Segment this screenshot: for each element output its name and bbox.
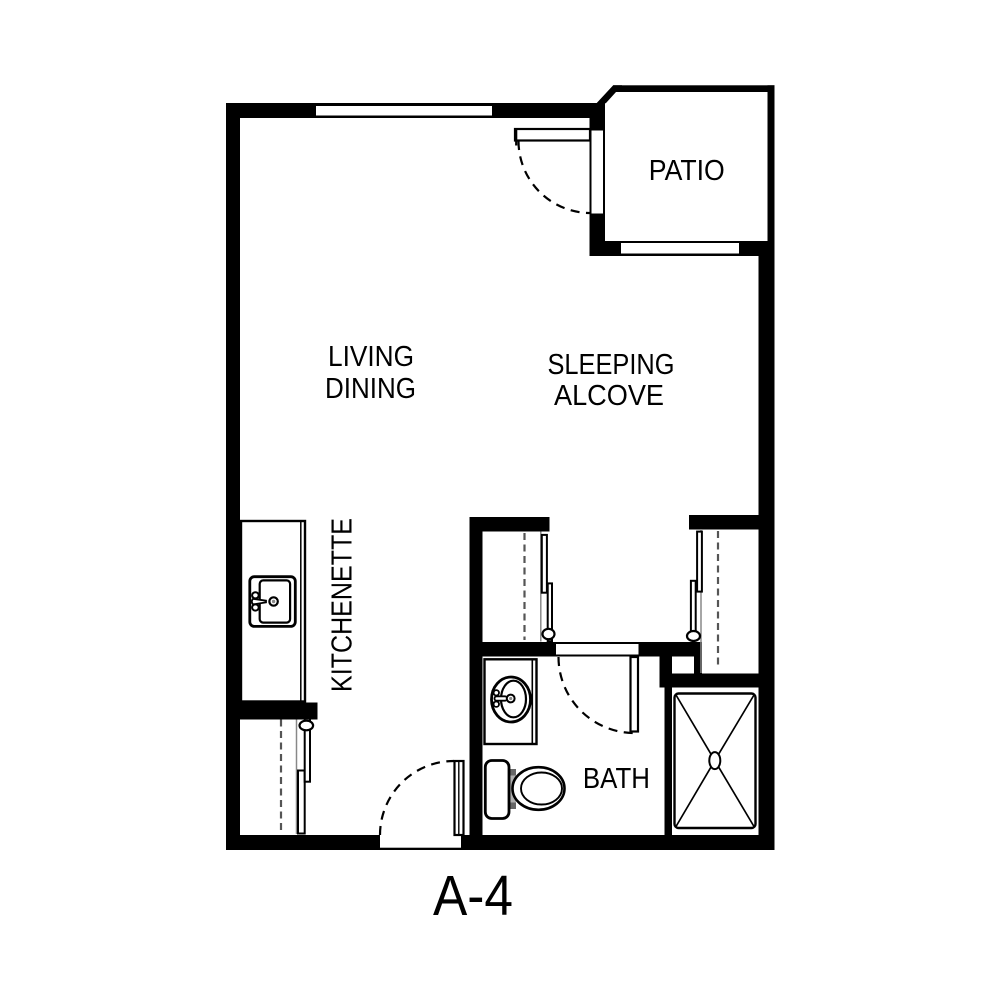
svg-text:KITCHENETTE: KITCHENETTE [327,518,359,692]
svg-text:BATH: BATH [583,763,650,795]
svg-text:DINING: DINING [325,373,416,405]
svg-text:ALCOVE: ALCOVE [554,380,664,412]
svg-text:PATIO: PATIO [649,155,725,187]
svg-text:LIVING: LIVING [328,341,414,373]
svg-text:SLEEPING: SLEEPING [548,349,675,381]
svg-text:A-4: A-4 [433,864,513,928]
